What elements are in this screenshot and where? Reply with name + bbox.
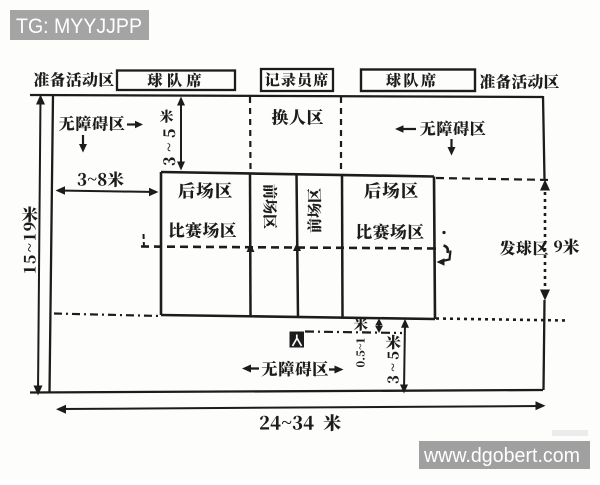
svg-text:TG: MYYJJPP: TG: MYYJJPP (16, 15, 142, 38)
svg-text:www.dgobert.com: www.dgobert.com (423, 445, 580, 467)
